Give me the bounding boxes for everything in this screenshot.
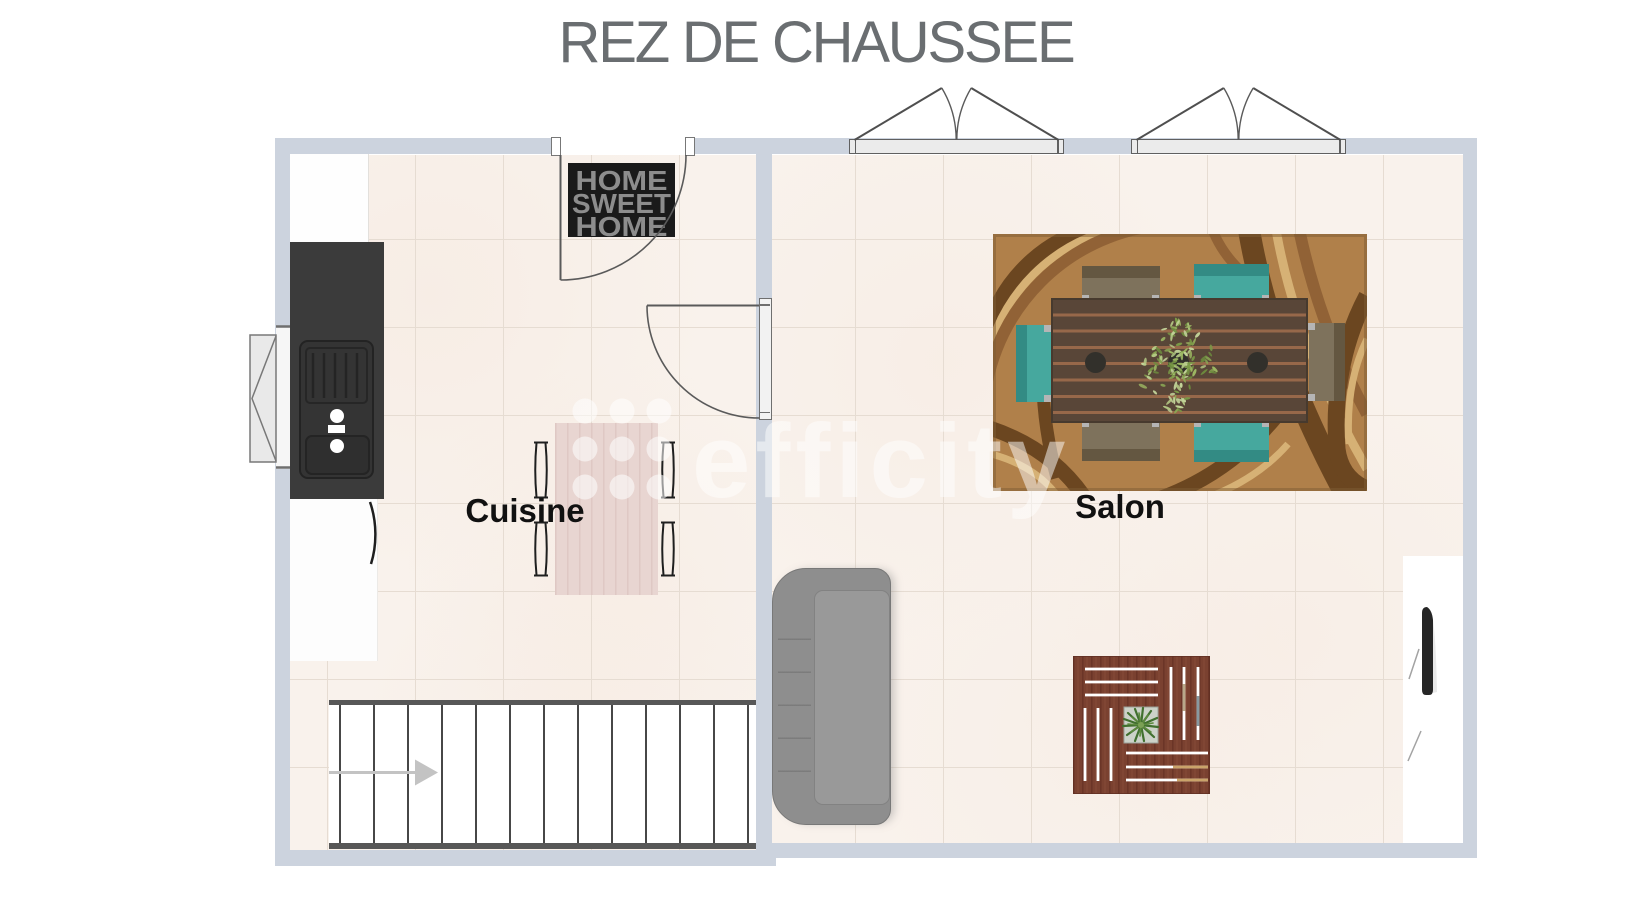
svg-text:efficity: efficity [692, 403, 1070, 520]
